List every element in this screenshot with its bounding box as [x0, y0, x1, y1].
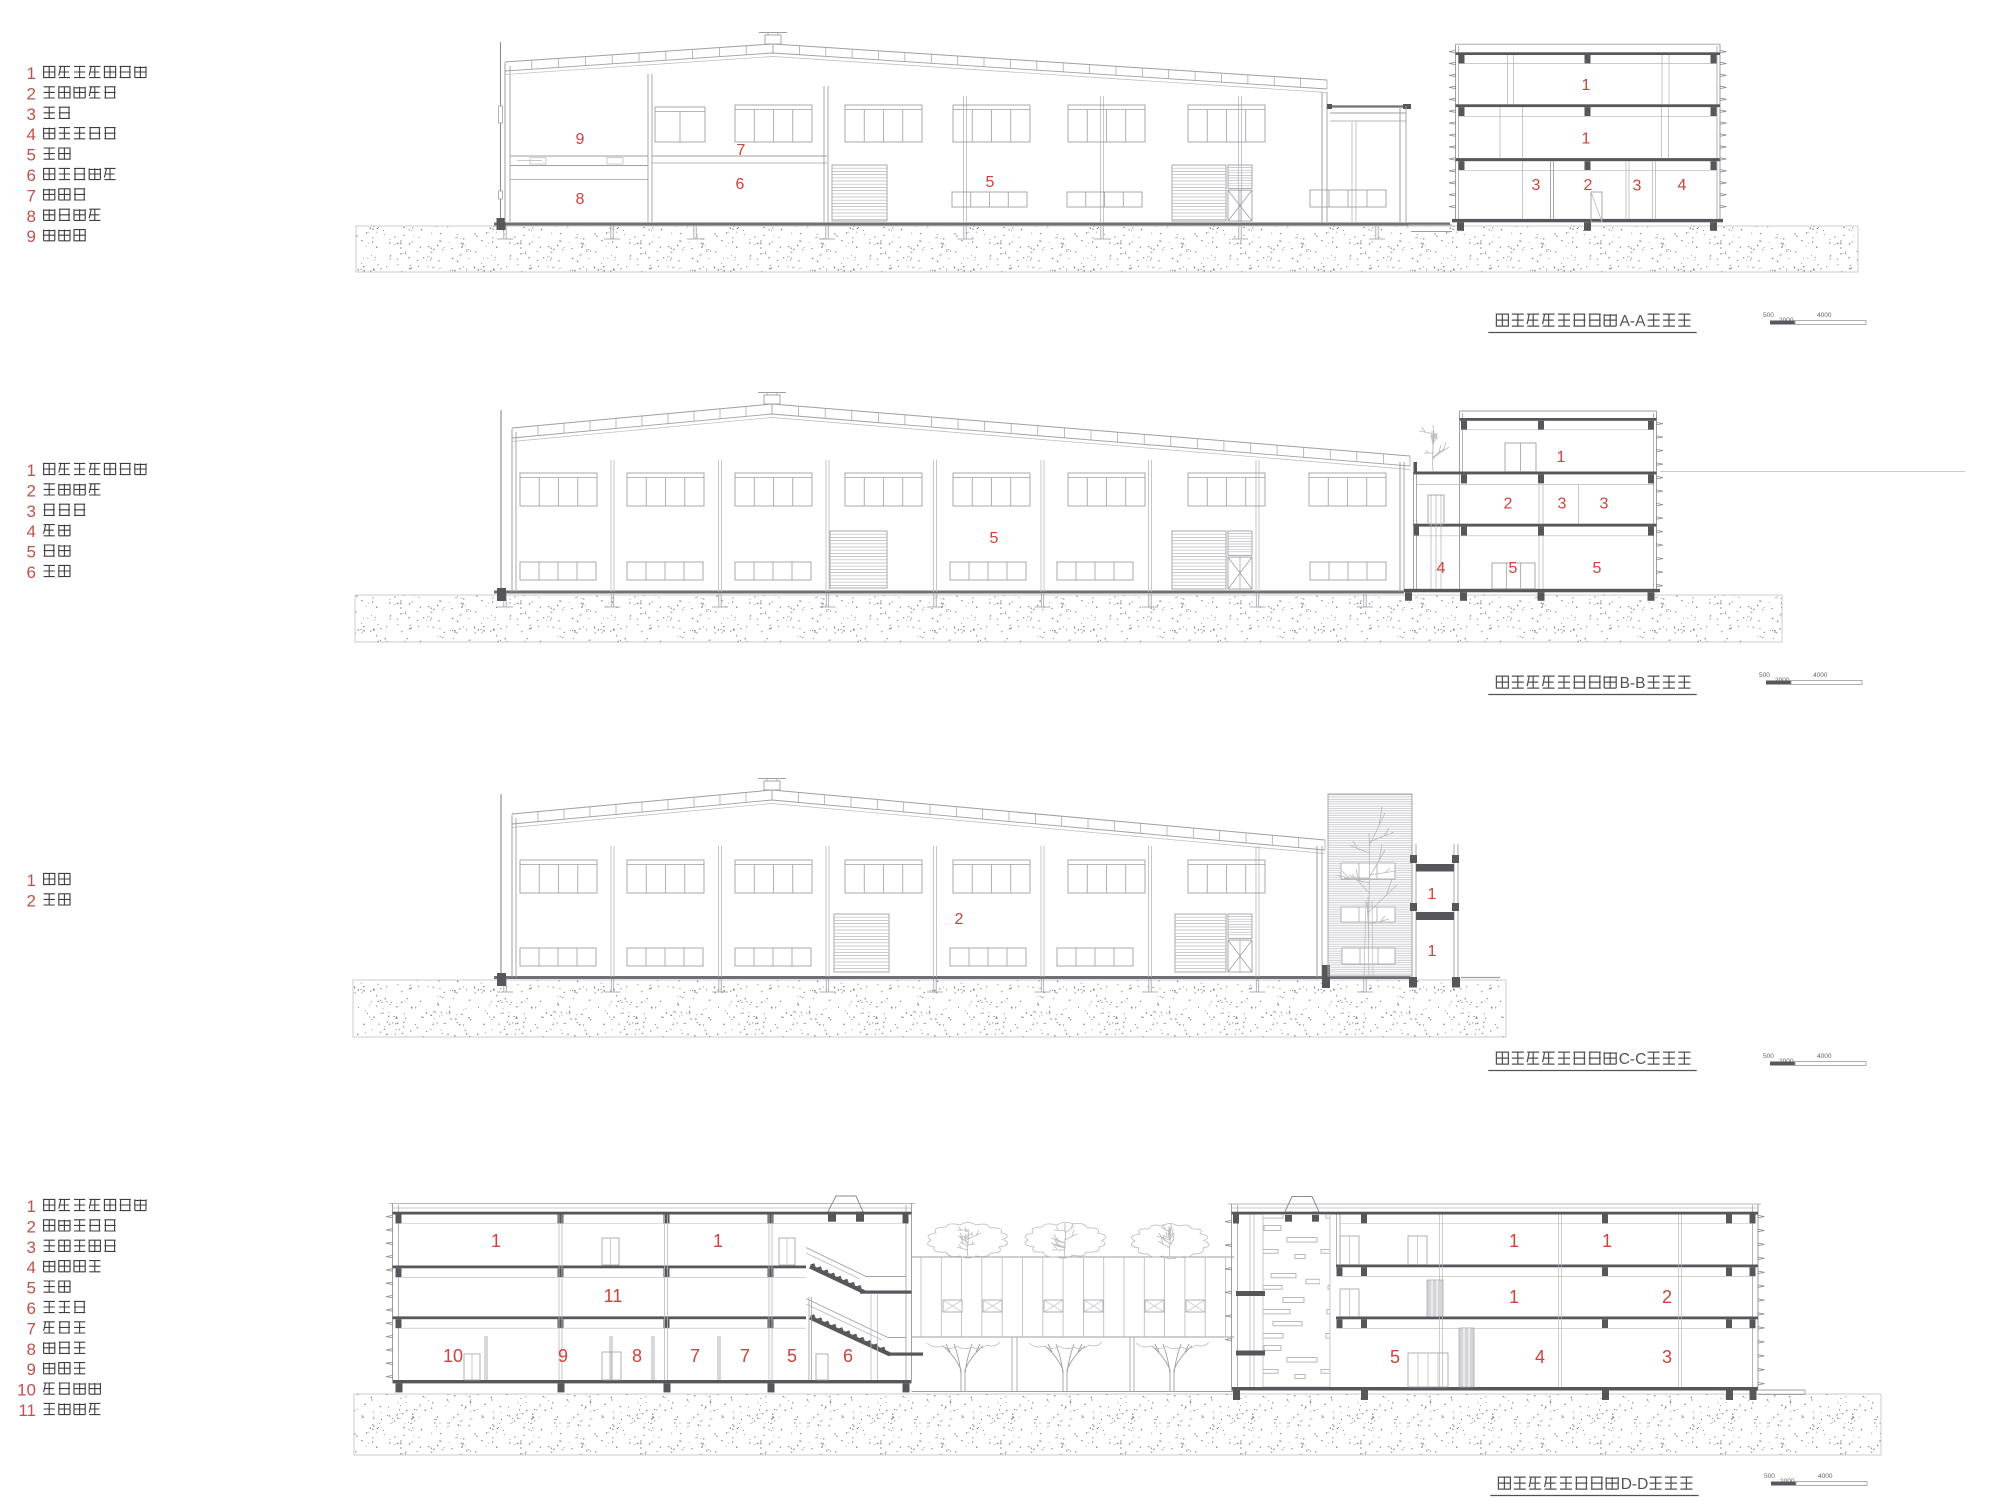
svg-text:11: 11	[604, 1286, 623, 1306]
svg-text:1: 1	[1509, 1231, 1519, 1251]
svg-text:2: 2	[27, 84, 36, 103]
svg-text:C-C: C-C	[1619, 1051, 1647, 1068]
svg-text:3: 3	[27, 502, 36, 521]
svg-text:5: 5	[1509, 560, 1518, 577]
svg-text:7: 7	[27, 1319, 36, 1338]
svg-text:5: 5	[986, 174, 995, 191]
svg-text:4000: 4000	[1813, 672, 1828, 679]
svg-text:7: 7	[737, 142, 746, 159]
svg-text:3: 3	[1662, 1347, 1672, 1367]
svg-text:4: 4	[27, 522, 36, 541]
svg-text:8: 8	[27, 207, 36, 226]
svg-text:4000: 4000	[1818, 1473, 1833, 1480]
svg-text:5: 5	[990, 530, 999, 547]
svg-text:5: 5	[787, 1346, 797, 1366]
svg-text:2: 2	[1662, 1287, 1672, 1307]
svg-text:1: 1	[1602, 1231, 1612, 1251]
svg-text:4000: 4000	[1817, 1053, 1832, 1060]
svg-text:1: 1	[1428, 943, 1437, 960]
svg-text:9: 9	[27, 227, 36, 246]
svg-text:1: 1	[1428, 886, 1437, 903]
svg-text:7: 7	[27, 186, 36, 205]
svg-text:6: 6	[843, 1346, 853, 1366]
svg-text:11: 11	[18, 1401, 36, 1420]
svg-text:5: 5	[27, 146, 36, 165]
svg-text:500: 500	[1764, 1473, 1775, 1480]
svg-text:2: 2	[1584, 177, 1593, 194]
svg-text:4: 4	[1535, 1347, 1545, 1367]
svg-text:8: 8	[576, 191, 585, 208]
svg-text:1: 1	[27, 1197, 36, 1216]
svg-text:2: 2	[27, 481, 36, 500]
svg-text:2: 2	[27, 1217, 36, 1236]
svg-text:1: 1	[27, 64, 36, 83]
svg-text:6: 6	[27, 1299, 36, 1318]
svg-text:4: 4	[1678, 177, 1687, 194]
svg-text:500: 500	[1759, 672, 1770, 679]
svg-text:6: 6	[736, 176, 745, 193]
svg-text:1: 1	[27, 871, 36, 890]
svg-text:5: 5	[27, 1279, 36, 1298]
svg-text:6: 6	[27, 563, 36, 582]
svg-text:3: 3	[1532, 177, 1541, 194]
svg-text:1: 1	[1509, 1287, 1519, 1307]
svg-text:1: 1	[713, 1231, 723, 1251]
svg-text:1: 1	[27, 461, 36, 480]
svg-text:1: 1	[1582, 77, 1591, 94]
svg-text:5: 5	[1390, 1347, 1400, 1367]
svg-text:4: 4	[27, 1258, 36, 1277]
svg-text:8: 8	[632, 1346, 642, 1366]
svg-text:1: 1	[491, 1231, 501, 1251]
svg-text:1: 1	[1557, 449, 1566, 466]
svg-text:4: 4	[1437, 560, 1446, 577]
svg-text:4: 4	[27, 125, 36, 144]
svg-text:7: 7	[690, 1346, 700, 1366]
svg-text:3: 3	[1633, 178, 1642, 195]
svg-text:9: 9	[576, 131, 585, 148]
svg-text:3: 3	[1600, 496, 1609, 513]
svg-text:4000: 4000	[1817, 312, 1832, 319]
svg-text:9: 9	[558, 1346, 568, 1366]
svg-text:B-B: B-B	[1620, 675, 1646, 692]
svg-text:10: 10	[443, 1346, 463, 1366]
svg-text:5: 5	[27, 543, 36, 562]
svg-text:9: 9	[27, 1360, 36, 1379]
svg-text:D-D: D-D	[1621, 1476, 1649, 1493]
svg-text:10: 10	[17, 1381, 36, 1400]
svg-text:5: 5	[1593, 560, 1602, 577]
svg-text:2: 2	[1504, 496, 1513, 513]
svg-text:A-A: A-A	[1620, 313, 1647, 330]
svg-text:3: 3	[1558, 496, 1567, 513]
svg-text:500: 500	[1763, 312, 1774, 319]
svg-text:3: 3	[27, 105, 36, 124]
svg-text:1: 1	[1582, 131, 1591, 148]
svg-text:2: 2	[27, 891, 36, 910]
svg-text:7: 7	[740, 1346, 750, 1366]
svg-text:2: 2	[955, 911, 964, 928]
svg-text:500: 500	[1763, 1053, 1774, 1060]
svg-text:6: 6	[27, 166, 36, 185]
svg-text:8: 8	[27, 1340, 36, 1359]
svg-text:3: 3	[27, 1238, 36, 1257]
